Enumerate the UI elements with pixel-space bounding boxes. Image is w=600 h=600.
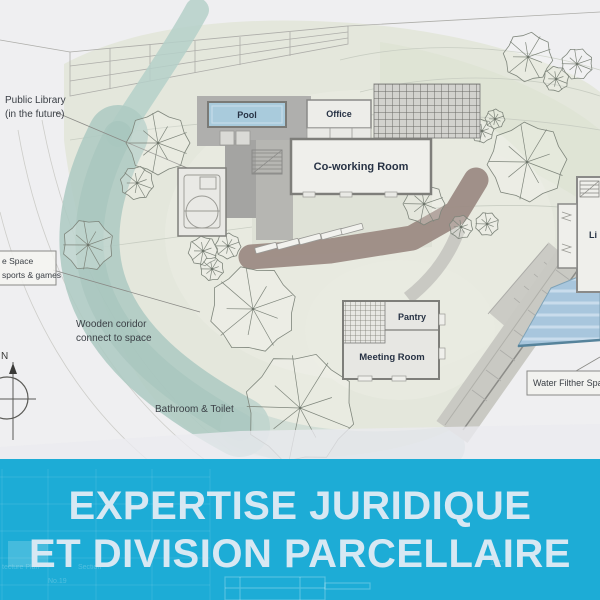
pergola-roof	[374, 84, 480, 138]
banner-title-line1: EXPERTISE JURIDIQUE	[69, 482, 532, 530]
pool-label: Pool	[237, 110, 257, 120]
free-space-label-line2: sports & games	[2, 270, 61, 280]
site-plan-svg: Public Library (in the future) e Space s…	[0, 0, 600, 462]
compass-north-label: N	[1, 351, 8, 362]
tree-symbol	[215, 233, 241, 259]
coworking-label: Co-working Room	[314, 161, 409, 173]
public-library-label-line1: Public Library	[5, 95, 66, 106]
water-filter-label: Water Filther Space	[533, 378, 600, 388]
meeting-building	[343, 301, 445, 381]
office-label: Office	[326, 109, 352, 119]
bath-house	[178, 168, 226, 236]
free-space-label-line1: e Space	[2, 256, 33, 266]
thumbnail: Public Library (in the future) e Space s…	[0, 0, 600, 600]
stairs	[252, 150, 282, 174]
wooden-corridor-label-line2: connect to space	[76, 333, 152, 344]
banner-title: EXPERTISE JURIDIQUE ET DIVISION PARCELLA…	[0, 459, 600, 600]
banner-title-line2: ET DIVISION PARCELLAIRE	[29, 530, 571, 578]
library-label-partial: Li	[589, 230, 597, 240]
wooden-corridor-label-line1: Wooden coridor	[76, 319, 147, 330]
tree-symbol	[126, 111, 190, 175]
meeting-room-label: Meeting Room	[359, 352, 424, 363]
banner: tecture Plan Section No.19 117° EXPERTIS…	[0, 459, 600, 600]
bathroom-label: Bathroom & Toilet	[155, 404, 234, 415]
tree-symbol	[485, 109, 505, 129]
public-library-label-line2: (in the future)	[5, 109, 64, 120]
pantry-label: Pantry	[398, 312, 426, 322]
office-building	[307, 100, 371, 140]
